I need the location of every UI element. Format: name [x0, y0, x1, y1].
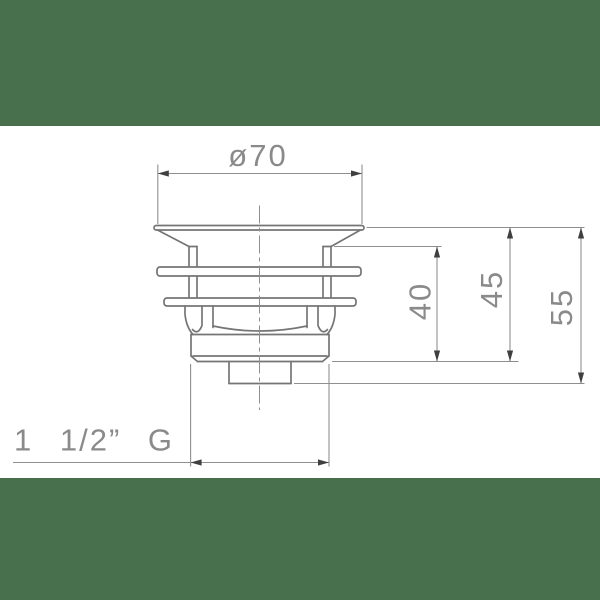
technical-drawing: ø70 40 45 55 — [0, 0, 600, 600]
dim-label-45: 45 — [474, 270, 509, 308]
arrowhead-down — [507, 351, 513, 362]
arrowhead-right — [351, 170, 362, 176]
arrowhead-right — [318, 459, 329, 465]
drain-fitting-outline — [154, 206, 364, 411]
dim-label-thread: 1 1/2” G — [14, 422, 174, 457]
dim-label-diameter: ø70 — [228, 138, 287, 173]
arrowhead-left — [158, 170, 169, 176]
arrowhead-up — [434, 247, 440, 258]
arrowhead-down — [434, 351, 440, 362]
arrowhead-down — [578, 373, 584, 384]
dim-label-40: 40 — [402, 282, 437, 320]
arrowhead-left — [191, 459, 202, 465]
arrowhead-up — [507, 228, 513, 239]
screenshot-root: ø70 40 45 55 — [0, 0, 600, 600]
dimension-thread: 1 1/2” G — [13, 364, 329, 467]
arrowhead-up — [578, 228, 584, 239]
dim-label-55: 55 — [544, 288, 579, 326]
